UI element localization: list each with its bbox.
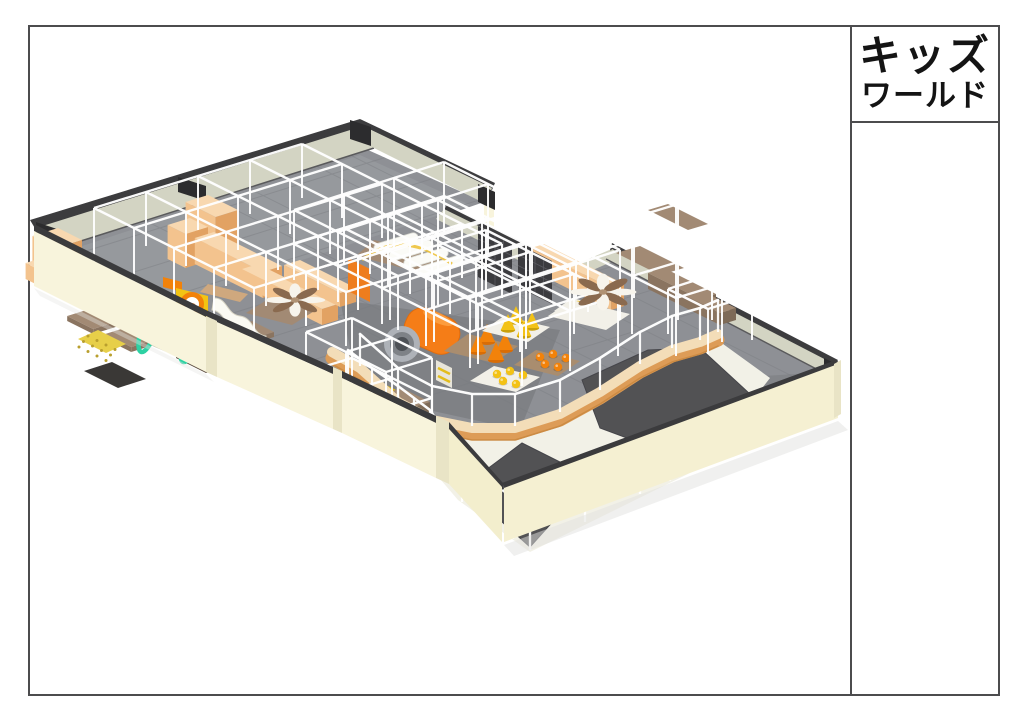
title-block-underline	[850, 121, 1000, 123]
project-title-line1: キッズ	[859, 35, 991, 79]
title-block: キッズ ワールド	[852, 27, 998, 121]
project-title-line2: ワールド	[861, 79, 989, 113]
presentation-sheet: キッズ ワールド	[0, 0, 1024, 724]
title-column-divider	[850, 25, 852, 696]
